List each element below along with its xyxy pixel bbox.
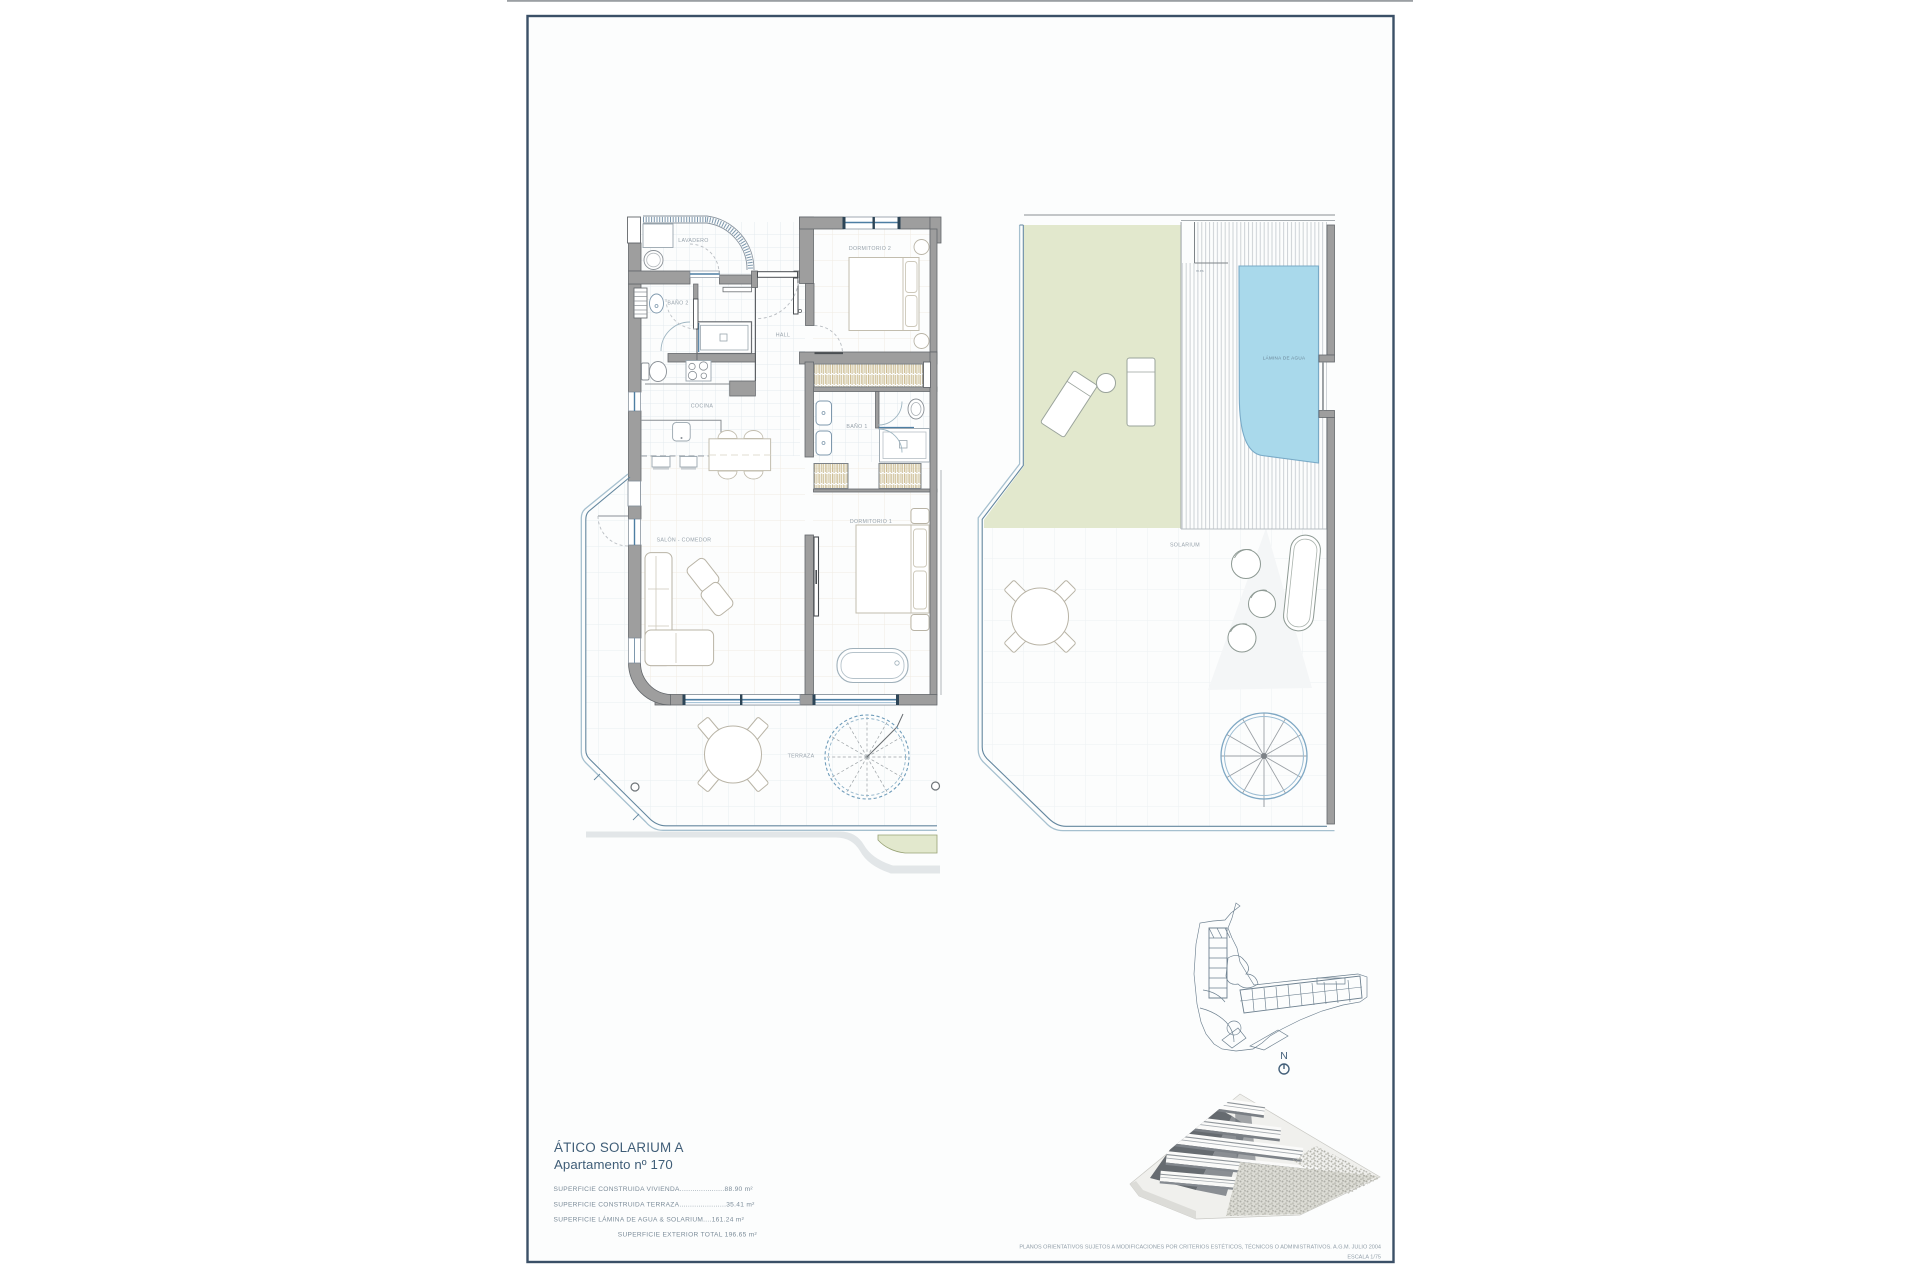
svg-text:LAVADERO: LAVADERO — [678, 238, 708, 244]
svg-text:SOLARIUM: SOLARIUM — [1170, 543, 1200, 549]
svg-text:BAÑO 1: BAÑO 1 — [846, 423, 867, 430]
svg-text:SUPERFICIE CONSTRUIDA VIVIENDA: SUPERFICIE CONSTRUIDA VIVIENDA..........… — [554, 1186, 754, 1193]
svg-text:SUPERFICIE EXTERIOR TOTAL 196.: SUPERFICIE EXTERIOR TOTAL 196.65 m² — [618, 1232, 758, 1239]
svg-text:LÁMINA DE AGUA: LÁMINA DE AGUA — [1263, 355, 1306, 361]
svg-text:TERRAZA: TERRAZA — [788, 754, 815, 760]
svg-text:SUPERFICIE CONSTRUIDA TERRAZA.: SUPERFICIE CONSTRUIDA TERRAZA...........… — [554, 1202, 756, 1209]
svg-text:N: N — [1280, 1050, 1288, 1062]
svg-text:m.es: m.es — [1196, 269, 1204, 273]
svg-text:DORMITORIO 1: DORMITORIO 1 — [850, 519, 892, 525]
svg-text:ÁTICO SOLARIUM A: ÁTICO SOLARIUM A — [554, 1140, 684, 1155]
svg-text:PLANOS ORIENTATIVOS SUJETOS A: PLANOS ORIENTATIVOS SUJETOS A MODIFICACI… — [1019, 1244, 1381, 1251]
svg-text:HALL: HALL — [776, 333, 790, 339]
svg-text:COCINA: COCINA — [691, 404, 714, 410]
svg-text:BAÑO 2: BAÑO 2 — [667, 300, 688, 307]
svg-text:ESCALA 1/75: ESCALA 1/75 — [1347, 1255, 1381, 1261]
svg-text:Apartamento nº 170: Apartamento nº 170 — [554, 1157, 673, 1172]
svg-text:SALÓN - COMEDOR: SALÓN - COMEDOR — [657, 537, 712, 544]
svg-text:SUPERFICIE LÁMINA DE AGUA & SO: SUPERFICIE LÁMINA DE AGUA & SOLARIUM....… — [554, 1215, 745, 1224]
svg-text:DORMITORIO 2: DORMITORIO 2 — [849, 246, 891, 252]
